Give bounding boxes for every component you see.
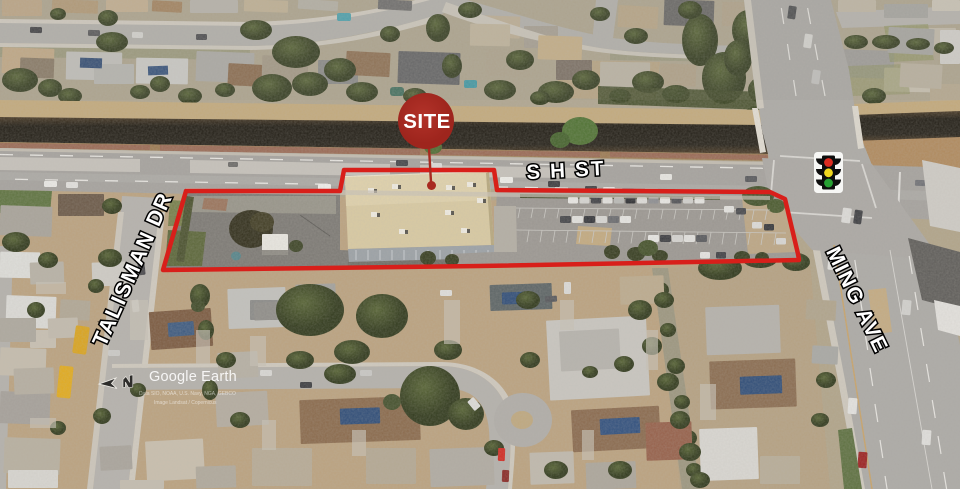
svg-text:S H ST: S H ST <box>526 157 606 184</box>
svg-text:Data SIO, NOAA, U.S. Navy, NGA: Data SIO, NOAA, U.S. Navy, NGA, GEBCO <box>139 391 236 397</box>
svg-text:Image Landsat / Copernicus: Image Landsat / Copernicus <box>154 400 217 406</box>
svg-text:Google Earth: Google Earth <box>149 369 237 385</box>
svg-text:SITE: SITE <box>403 110 451 133</box>
